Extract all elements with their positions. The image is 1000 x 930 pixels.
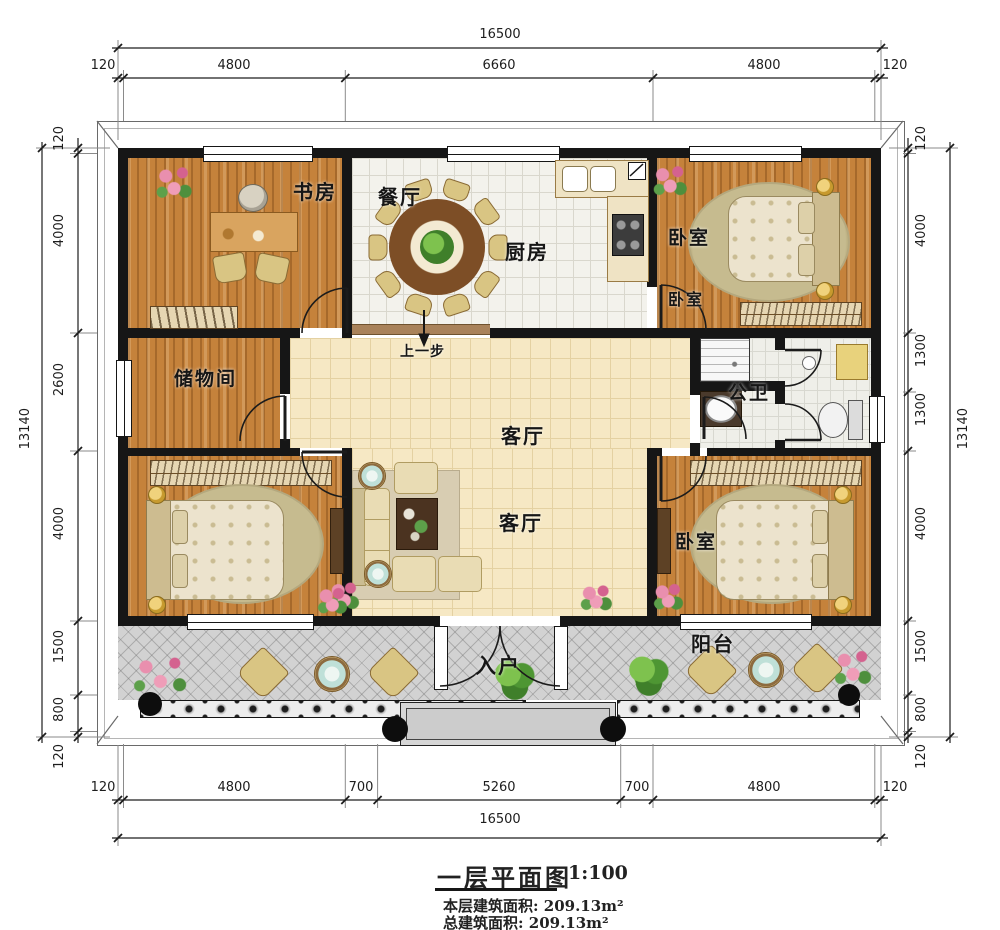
dining-centerpiece-plant [420,230,454,264]
room-label-bedroom-tr2: 卧室 [668,286,704,310]
wall-storage-bottom [118,448,300,456]
window-storage-left [116,360,132,437]
kitchen-sink-1 [562,166,588,192]
dim-right-3: 1300 [914,393,929,426]
bedroom-bl-pillow [172,510,188,544]
bedroom-bl-wardrobe [150,460,332,486]
wall-south-3 [560,616,680,626]
wall-kitchen-south [490,328,871,338]
plan-scale: 1:100 [568,862,628,884]
room-label-kitchen: 厨房 [505,236,549,265]
stair-note-label: 上一步 [400,341,445,361]
bathroom-light [802,356,816,370]
room-label-dining: 餐厅 [378,181,422,210]
bedroom-bl-tv-cabinet [330,508,344,574]
dim-right-1: 4000 [914,214,929,247]
armchair-bottom-2 [438,556,482,592]
dim-top-2: 6660 [469,58,529,73]
dim-left-0: 120 [52,126,67,151]
study-plant [152,160,198,206]
dim-right-4: 4000 [914,507,929,540]
balcony-table-right [748,652,784,688]
entry-steps-line [406,708,610,740]
dim-bottom-5: 4800 [734,780,794,795]
kitchen-sink-2 [590,166,616,192]
bathroom-shower [700,338,750,382]
dim-top-total: 16500 [470,27,530,42]
bedroom-br-lamp [834,596,852,614]
armchair-top [394,462,438,494]
bedroom-bl-lamp [148,486,166,504]
room-label-bedroom-tr: 卧室 [668,223,710,250]
bedroom-tr-closet [740,302,862,326]
dim-bottom-4: 700 [617,780,657,795]
dim-left-2: 2600 [52,363,67,396]
wall-south-4 [810,616,881,626]
kitchen-drain-symbol [628,162,646,180]
window-bedroom-tr-top [689,146,802,162]
bedroom-bl-pillow [172,554,188,588]
bedroom-br-headboard [828,500,854,600]
bedroom-tr-pillow [798,244,815,276]
bedroom-tr-lamp [816,282,834,300]
balcony-flowers-left [122,648,202,702]
floor-plan-canvas: 书房 餐厅 厨房 卧室 卧室 储物间 公卫 客厅 客厅 卧室 阳台 入户 上一步… [0,0,1000,930]
dim-bottom-1: 4800 [204,780,264,795]
window-bedroom-bl-south [187,614,314,630]
dim-right-7: 120 [914,744,929,769]
side-table-bottom [364,560,392,588]
coffee-table [396,498,438,550]
bedroom-bl-plant [316,584,350,618]
dim-left-3: 4000 [52,507,67,540]
column-right [838,684,860,706]
room-label-entry: 入户 [475,650,521,680]
bedroom-tr-lamp [816,178,834,196]
entry-door-leaf-left [434,626,448,690]
dim-left-5: 800 [52,697,67,722]
wall-south-1 [118,616,187,626]
wall-bedroom-br-top-b [707,448,871,456]
balcony-table-left [314,656,350,692]
dim-top-1: 4800 [204,58,264,73]
window-dining-top [447,146,560,162]
wall-storage-right-a [280,338,290,394]
armchair-bottom-1 [392,556,436,592]
floor-hall-upper [290,338,690,448]
room-label-storage: 储物间 [174,364,237,391]
bedroom-tr-pillow [798,202,815,234]
dim-left-1: 4000 [52,214,67,247]
wall-study-bottom [118,328,300,338]
column-left [138,692,162,716]
dim-bottom-6: 120 [880,780,910,795]
bathroom-toilet-bowl [818,402,848,438]
room-label-bedroom-br: 卧室 [675,527,717,554]
wall-bedroom-br-top-a [657,448,662,456]
window-bathroom-right [869,396,885,443]
plan-title-underline [435,888,557,891]
side-table-top [358,462,386,490]
wall-bath-vert-a [775,338,785,350]
column-step-right [600,716,626,742]
dim-top-0: 120 [88,58,118,73]
kitchen-stove [612,214,644,256]
bedroom-br-lamp [834,486,852,504]
bedroom-br-wardrobe [690,460,862,486]
dim-right-6: 800 [914,697,929,722]
wall-bath-vert-b [775,386,785,404]
dim-bottom-3: 5260 [469,780,529,795]
dim-bottom-2: 700 [341,780,381,795]
room-label-living-a: 客厅 [501,420,545,449]
dining-chair [369,235,388,261]
room-label-living-b: 客厅 [499,507,543,536]
entry-door-leaf-right [554,626,568,690]
room-label-bathroom: 公卫 [728,378,770,405]
dim-right-5: 1500 [914,630,929,663]
wall-study-right [342,148,352,338]
living-plant-right [578,582,616,614]
window-study-top [203,146,313,162]
study-desk [210,212,298,252]
dim-bottom-total: 16500 [470,812,530,827]
dim-right-total: 13140 [956,408,971,449]
balcony-railing-right [617,700,860,718]
floor-storage [128,338,280,448]
dim-top-4: 120 [880,58,910,73]
dim-left-4: 1500 [52,630,67,663]
wall-bath-left-b [690,443,700,456]
bedroom-tr-plant [650,160,692,202]
bedroom-br-pillow [812,554,828,588]
wall-exterior-right [871,158,881,626]
bedroom-bl-lamp [148,596,166,614]
room-label-study: 书房 [293,176,337,205]
dim-right-0: 120 [914,126,929,151]
bedroom-br-plant [652,580,686,614]
entry-steps [400,702,616,746]
bathroom-toilet-tank [848,400,863,440]
bedroom-bl-headboard [146,500,172,600]
dim-top-3: 4800 [734,58,794,73]
stair-landing-edge [352,324,490,335]
column-step-left [382,716,408,742]
bedroom-tr-headboard [812,192,840,286]
dim-left-total: 13140 [18,408,33,449]
study-bookshelf [150,306,238,329]
dim-bottom-0: 120 [88,780,118,795]
bedroom-br-tv-cabinet [657,508,671,574]
balcony-bush-right [626,654,672,698]
wall-bath-vert-c [775,440,785,448]
plan-area-line2: 总建筑面积: 209.13m² [443,912,609,930]
bathroom-cabinet [836,344,868,380]
room-label-balcony: 阳台 [691,628,735,657]
dim-right-2: 1300 [914,334,929,367]
bedroom-br-pillow [812,510,828,544]
study-desk-chair [238,184,268,212]
dim-left-6: 120 [52,744,67,769]
